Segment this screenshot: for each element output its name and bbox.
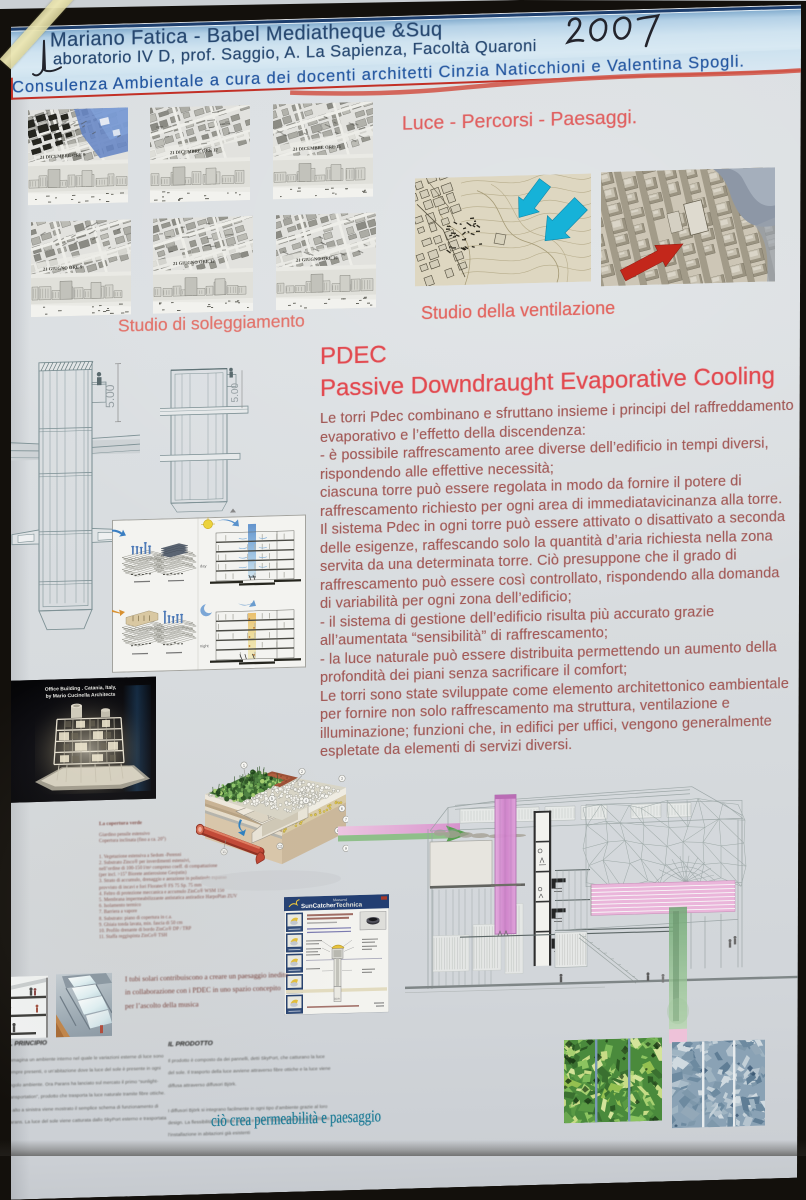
svg-text:7: 7 [345, 818, 347, 822]
svg-text:11: 11 [222, 850, 226, 854]
svg-text:1: 1 [243, 764, 245, 768]
svg-text:2: 2 [301, 770, 303, 774]
svg-text:day: day [200, 563, 206, 568]
svg-text:3: 3 [341, 777, 343, 781]
svg-text:4: 4 [305, 799, 307, 803]
svg-text:6: 6 [341, 807, 343, 811]
svg-text:5.00: 5.00 [230, 382, 241, 402]
svg-text:night: night [200, 643, 210, 648]
svg-text:5.00: 5.00 [103, 384, 117, 408]
svg-text:12: 12 [278, 845, 282, 849]
svg-text:Björk: Björk [334, 996, 341, 1000]
svg-text:5: 5 [271, 797, 273, 801]
